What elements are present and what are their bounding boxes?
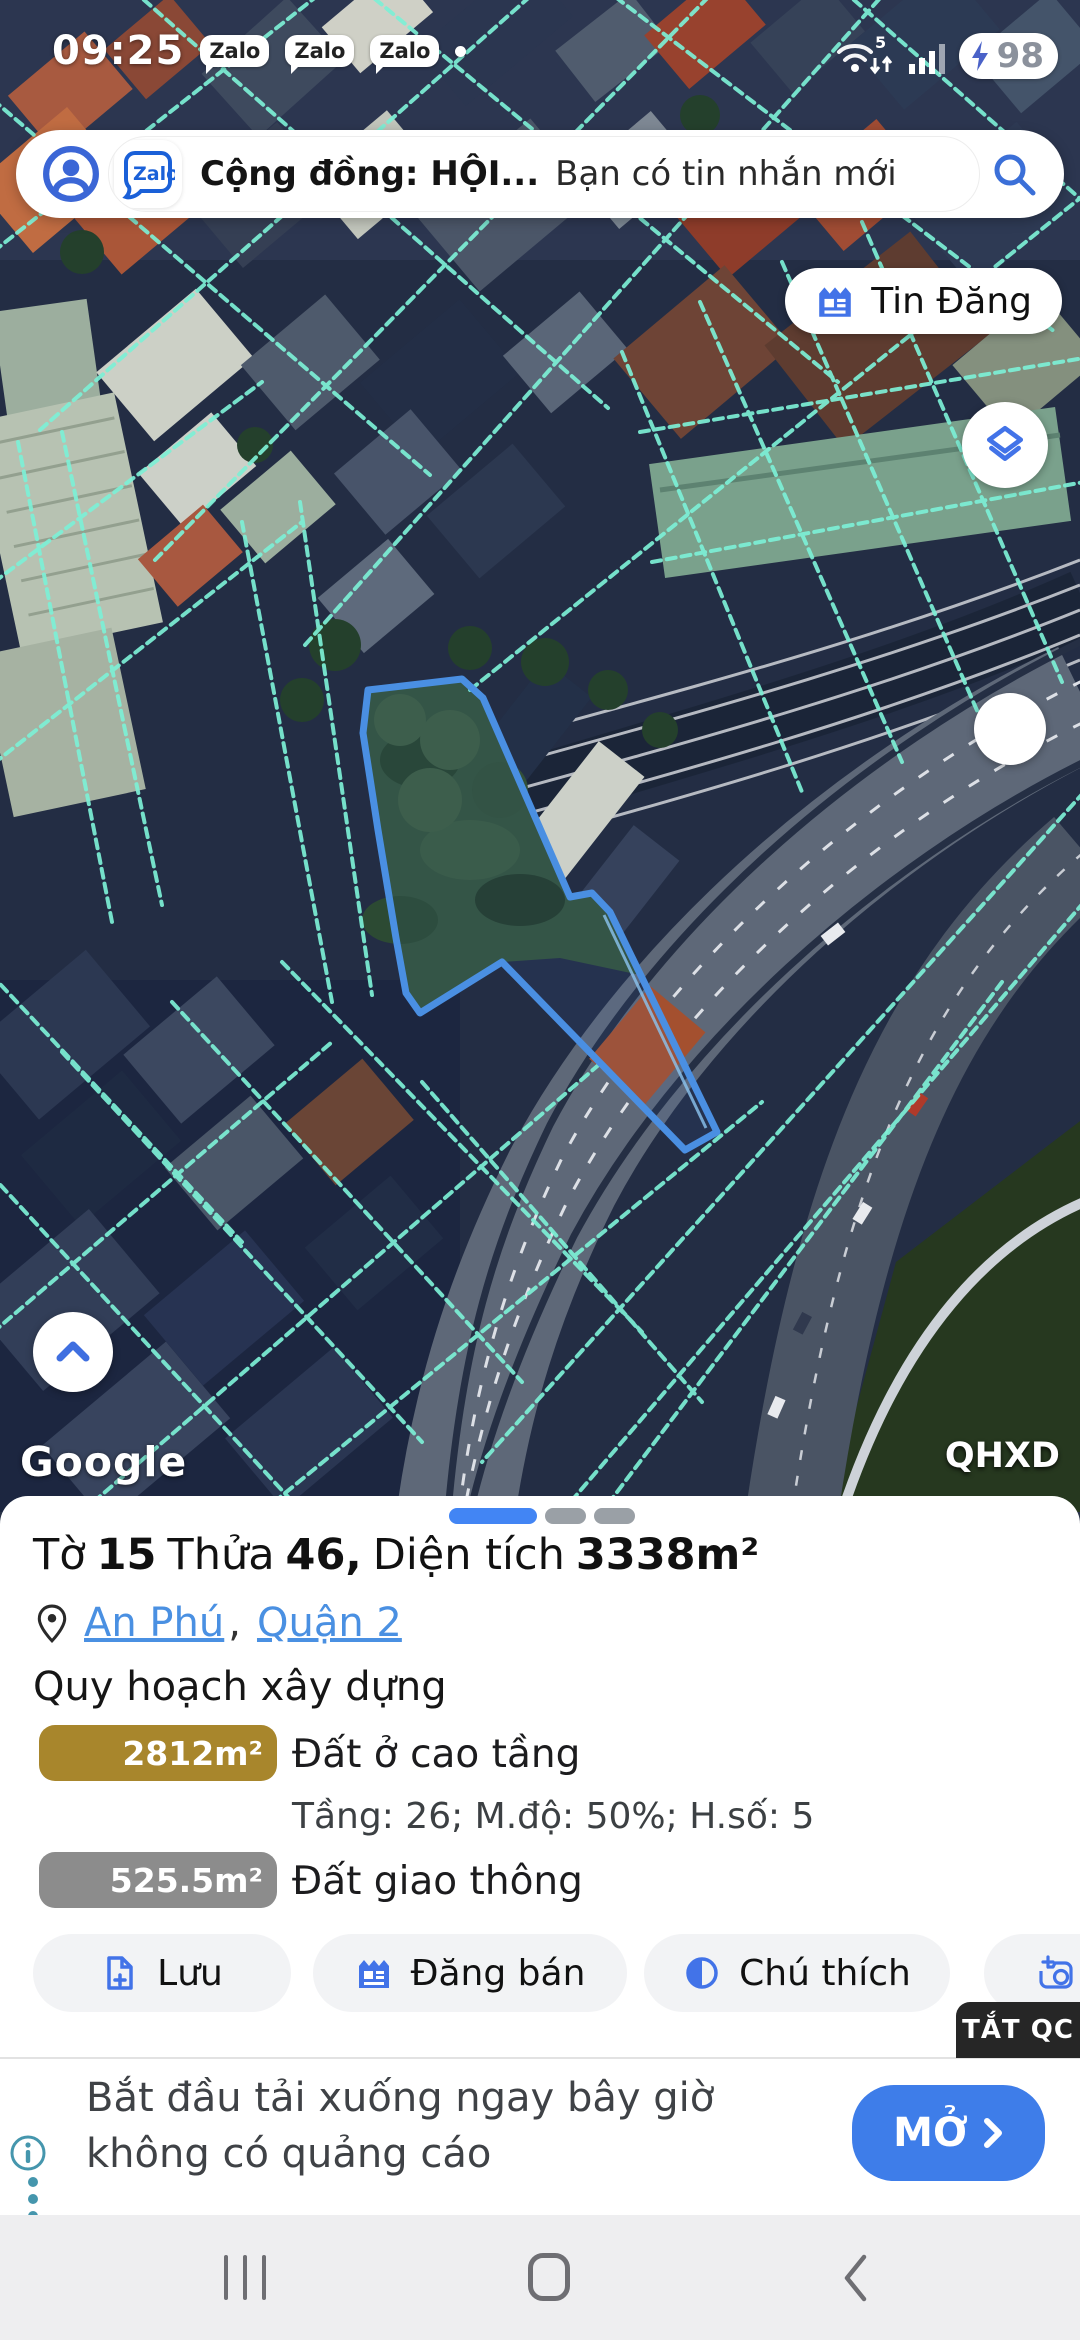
dismiss-ad-button[interactable]: TẮT QC xyxy=(956,2002,1080,2058)
capture-button[interactable] xyxy=(984,1934,1080,2012)
page-indicator-active xyxy=(449,1508,537,1524)
ad-open-button[interactable]: MỞ xyxy=(852,2085,1045,2181)
page-indicator-dot xyxy=(594,1508,635,1524)
zalo-notification-icon: Zalo xyxy=(370,35,439,67)
recents-button[interactable] xyxy=(224,2255,266,2300)
location-separator: , xyxy=(228,1600,241,1646)
post-sale-button[interactable]: Đăng bán xyxy=(313,1934,627,2012)
chevron-up-icon xyxy=(50,1332,96,1372)
svg-text:Zalo: Zalo xyxy=(133,163,175,185)
status-bar-left: 09:25 Zalo Zalo Zalo xyxy=(52,28,466,74)
camera-plus-icon xyxy=(1039,1953,1079,1993)
action-buttons-row: Lưu Đăng bán Chú thích xyxy=(0,1934,1080,2012)
legend-button[interactable]: Chú thích xyxy=(644,1934,950,2012)
post-listing-label: Tin Đăng xyxy=(871,281,1032,322)
search-icon[interactable] xyxy=(990,150,1038,198)
map-layer-label: QHXD xyxy=(945,1436,1060,1476)
ad-banner[interactable]: Bắt đầu tải xuống ngay bây giờ không có … xyxy=(0,2057,1080,2215)
page-indicator-dot xyxy=(545,1508,586,1524)
page-indicator xyxy=(449,1508,635,1524)
ad-info-icon[interactable] xyxy=(8,2133,48,2173)
zalo-logo-icon: Zalo xyxy=(114,140,182,208)
ad-text-line1: Bắt đầu tải xuống ngay bây giờ xyxy=(86,2075,714,2121)
zone-name: Đất giao thông xyxy=(292,1859,583,1904)
phone-screen: 09:25 Zalo Zalo Zalo 5 98 xyxy=(0,0,1080,2340)
parcel-location: An Phú , Quận 2 xyxy=(36,1600,402,1646)
zalo-notification-icon: Zalo xyxy=(285,35,354,67)
clock: 09:25 xyxy=(52,28,184,74)
svg-text:5: 5 xyxy=(875,33,886,52)
location-pin-icon xyxy=(36,1602,68,1644)
message-preview-text: Bạn có tin nhắn mới xyxy=(555,154,897,194)
ad-text-line2: không có quảng cáo xyxy=(86,2131,491,2177)
newspaper-icon xyxy=(355,1954,393,1992)
chevron-right-icon xyxy=(982,2117,1004,2149)
parcel-info-panel: Tờ15 Thửa46, Diện tích3338m² An Phú , Qu… xyxy=(0,1496,1080,2057)
zalo-notification-icon: Zalo xyxy=(200,35,269,67)
save-document-plus-icon xyxy=(101,1954,139,1992)
satellite-map[interactable] xyxy=(0,0,1080,1512)
conversation-name: Cộng đồng: HỘI... xyxy=(200,154,539,194)
section-title: Quy hoạch xây dựng xyxy=(33,1664,447,1710)
zone-details: Tầng: 26; M.độ: 50%; H.số: 5 xyxy=(292,1796,814,1837)
google-watermark: Google xyxy=(20,1438,187,1486)
newspaper-icon xyxy=(815,281,855,321)
home-button[interactable] xyxy=(528,2253,570,2301)
ward-link[interactable]: An Phú xyxy=(84,1600,224,1646)
layers-icon xyxy=(982,422,1028,468)
back-button[interactable] xyxy=(840,2253,870,2303)
message-preview-chip[interactable]: Zalo Cộng đồng: HỘI... Bạn có tin nhắn m… xyxy=(108,136,980,212)
system-navigation-bar xyxy=(0,2215,1080,2340)
save-button[interactable]: Lưu xyxy=(33,1934,291,2012)
zone-name: Đất ở cao tầng xyxy=(292,1732,580,1777)
charging-bolt-icon xyxy=(967,39,993,73)
more-notifications-dot xyxy=(455,46,466,57)
half-circle-contrast-icon xyxy=(683,1954,721,1992)
battery-indicator: 98 xyxy=(959,33,1058,79)
map-layers-button[interactable] xyxy=(962,402,1048,488)
district-link[interactable]: Quận 2 xyxy=(257,1600,402,1646)
search-bar[interactable]: Zalo Cộng đồng: HỘI... Bạn có tin nhắn m… xyxy=(16,130,1064,218)
signal-icon xyxy=(907,34,947,78)
account-icon[interactable] xyxy=(42,145,100,203)
post-listing-button[interactable]: Tin Đăng xyxy=(785,268,1062,334)
zone-area-chip: 2812m² xyxy=(39,1725,277,1781)
collapse-panel-button[interactable] xyxy=(33,1312,113,1392)
status-bar-right: 5 98 xyxy=(833,30,1058,82)
parcel-title: Tờ15 Thửa46, Diện tích3338m² xyxy=(33,1530,759,1580)
zone-area-chip: 525.5m² xyxy=(39,1852,277,1908)
map-circle-button[interactable] xyxy=(974,693,1046,765)
wifi-icon: 5 xyxy=(833,30,895,82)
